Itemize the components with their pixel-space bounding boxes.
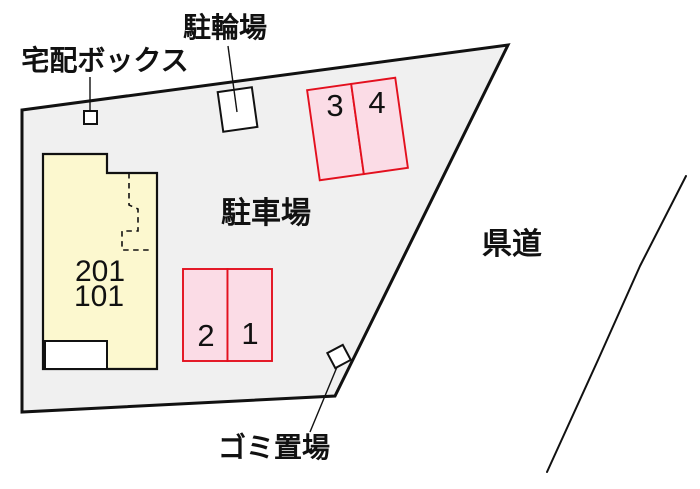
parking-space-1-number: 1	[241, 316, 258, 351]
parking-space-4-number: 4	[368, 85, 385, 120]
prefectural-road-label: 県道	[482, 228, 542, 261]
road-line	[547, 176, 686, 472]
garbage-area-label: ゴミ置場	[218, 431, 330, 463]
bicycle-parking-label: 駐輪場	[183, 11, 267, 43]
delivery-box	[84, 111, 97, 124]
site-plan-drawing: 201 101 3 4 2 1 宅配ボック	[0, 0, 700, 489]
delivery-box-label: 宅配ボックス	[21, 44, 188, 76]
parking-space-3-number: 3	[326, 88, 343, 123]
parking-space-2-number: 2	[197, 318, 214, 353]
parking-bay-1-2	[183, 269, 272, 361]
site-plan-canvas: 201 101 3 4 2 1 宅配ボック	[0, 0, 700, 489]
bicycle-parking-box	[218, 87, 258, 131]
parking-bay-3-4	[307, 78, 408, 181]
building-unit-label-101: 101	[74, 280, 124, 313]
building-entrance	[45, 341, 107, 369]
parking-lot-label: 駐車場	[221, 197, 311, 230]
